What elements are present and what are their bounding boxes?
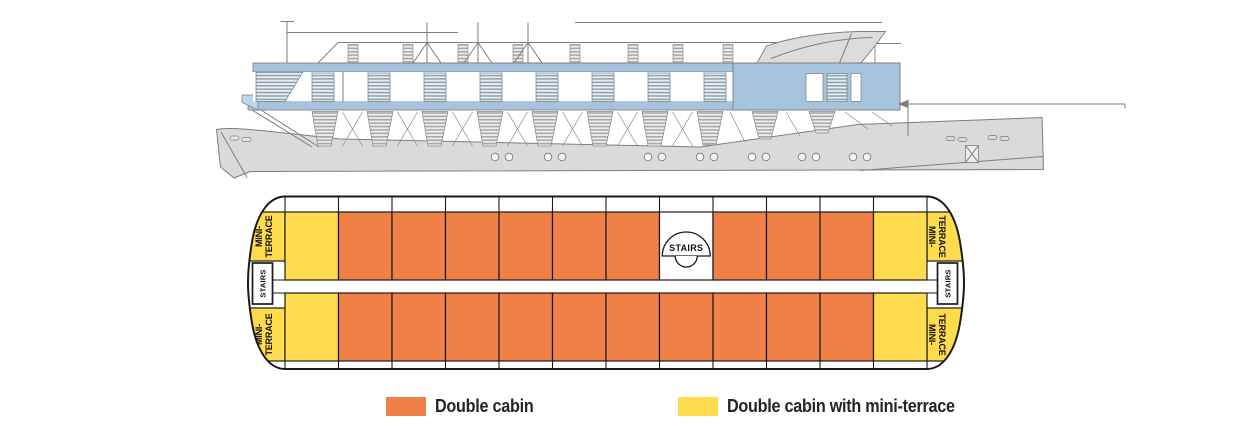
cabin-double [820,293,874,361]
ship-hull [217,118,1044,179]
mini-terrace-label: MINI- [254,324,264,345]
stairs-dome-label: STAIRS [669,243,703,253]
cabin-double [606,293,660,361]
cabin-double [392,293,446,361]
cabin-double [606,212,660,280]
cabin-double [446,212,500,280]
cabin-terrace [874,293,928,361]
ship-side-profile [217,22,1126,179]
cabin-double [713,212,767,280]
legend-swatch-terrace-cabin [678,397,718,416]
cabin-terrace [285,293,339,361]
cabin-terrace [874,212,928,280]
mini-terrace-label: MINI- [927,226,937,247]
cabin-double [713,293,767,361]
cabin-double [339,212,393,280]
cabin-double [660,293,714,361]
legend-item-double-cabin: Double cabin [386,396,544,417]
stairs-box-left-label: STAIRS [259,269,268,297]
cabin-double [553,212,607,280]
cabin-double [392,212,446,280]
mini-terrace-label: TERRACE [937,313,947,355]
deck-plan: STAIRS STAIRS STAIRS MINI- TERRACE MINI-… [240,197,972,370]
ship-deck-plan-page: STAIRS STAIRS STAIRS MINI- TERRACE MINI-… [0,0,1260,428]
cabin-double [767,212,821,280]
cabin-double [767,293,821,361]
mini-terrace-label: TERRACE [264,215,274,257]
stairs-box-left: STAIRS [253,263,273,304]
mini-terrace-label: TERRACE [264,313,274,355]
cabin-double [339,293,393,361]
cabin-double [553,293,607,361]
stairs-box-right: STAIRS [938,263,958,304]
legend-swatch-double-cabin [386,397,426,416]
mini-terrace-label: MINI- [927,324,937,345]
cabin-double [499,293,553,361]
scene: STAIRS STAIRS STAIRS MINI- TERRACE MINI-… [0,0,1260,428]
cabin-double [446,293,500,361]
stairs-box-right-label: STAIRS [944,269,953,297]
stern-canopy [757,32,901,64]
cabin-double [499,212,553,280]
cabin-double [820,212,874,280]
legend-label-terrace-cabin: Double cabin with mini-terrace [727,396,955,417]
mini-terrace-label: TERRACE [937,215,947,257]
cabin-terrace [285,212,339,280]
legend-item-terrace-cabin: Double cabin with mini-terrace [678,396,980,417]
legend-label-double-cabin: Double cabin [435,396,533,417]
